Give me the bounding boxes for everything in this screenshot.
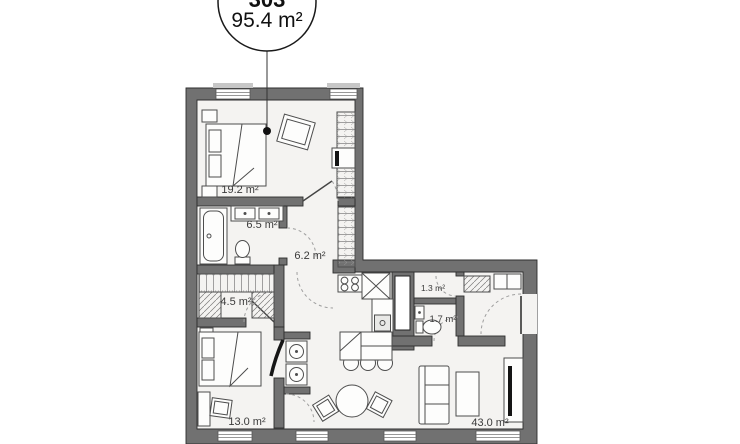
unit-area: 95.4 m² xyxy=(231,9,302,32)
tv-icon xyxy=(508,366,512,416)
window-sill xyxy=(213,83,253,88)
washer-dot xyxy=(295,350,298,353)
room-label-bathroom: 6.5 m² xyxy=(246,219,278,231)
room-label-living: 43.0 m² xyxy=(471,417,509,429)
toilet-tank xyxy=(235,257,250,264)
wardrobe xyxy=(337,112,355,150)
entry-door-opening xyxy=(522,294,537,334)
window xyxy=(218,431,252,441)
pillow xyxy=(202,338,214,358)
pillow xyxy=(202,360,214,380)
desk xyxy=(198,392,210,426)
shelf-unit xyxy=(199,292,221,318)
faucet-icon xyxy=(418,311,421,314)
coat-rack xyxy=(464,276,490,292)
faucet-icon xyxy=(268,212,271,215)
toilet-tank xyxy=(416,321,423,333)
room-label-closet: 4.5 m² xyxy=(220,296,252,308)
room-label-storage: 1.3 m² xyxy=(421,283,445,293)
window xyxy=(476,431,520,441)
nightstand xyxy=(202,110,217,122)
hanging-rail xyxy=(199,274,274,292)
round-dining-table xyxy=(336,385,368,417)
tv-panel xyxy=(504,358,523,422)
floor-plan-image: 19.2 m² 6.5 m² 6.2 m² 4.5 m² 13.0 m² 1.3… xyxy=(0,0,740,444)
window xyxy=(384,431,416,441)
toilet xyxy=(236,241,250,258)
hallway-wardrobe xyxy=(338,207,355,267)
room-label-wc: 1.7 m² xyxy=(430,314,457,325)
window-sill xyxy=(327,83,360,88)
dryer-dot xyxy=(295,373,298,376)
pillow xyxy=(209,155,221,177)
faucet-icon xyxy=(244,212,247,215)
window xyxy=(216,89,250,99)
pantry-cabinet xyxy=(395,276,410,330)
sofa xyxy=(419,366,449,424)
window xyxy=(330,89,357,99)
leader-dot xyxy=(263,127,271,135)
room-label-hallway: 6.2 m² xyxy=(294,250,326,262)
coffee-table xyxy=(456,372,479,416)
kitchen-sink xyxy=(375,315,391,331)
room-label-bedroom-1: 19.2 m² xyxy=(221,184,259,196)
floor-plan-svg: 19.2 m² 6.5 m² 6.2 m² 4.5 m² 13.0 m² 1.3… xyxy=(0,0,740,444)
pillow xyxy=(209,130,221,152)
window xyxy=(296,431,328,441)
wardrobe xyxy=(337,168,355,198)
room-label-bedroom-2: 13.0 m² xyxy=(228,416,266,428)
shelf-unit xyxy=(252,292,274,318)
tv-icon xyxy=(335,151,339,166)
nightstand xyxy=(202,186,217,197)
